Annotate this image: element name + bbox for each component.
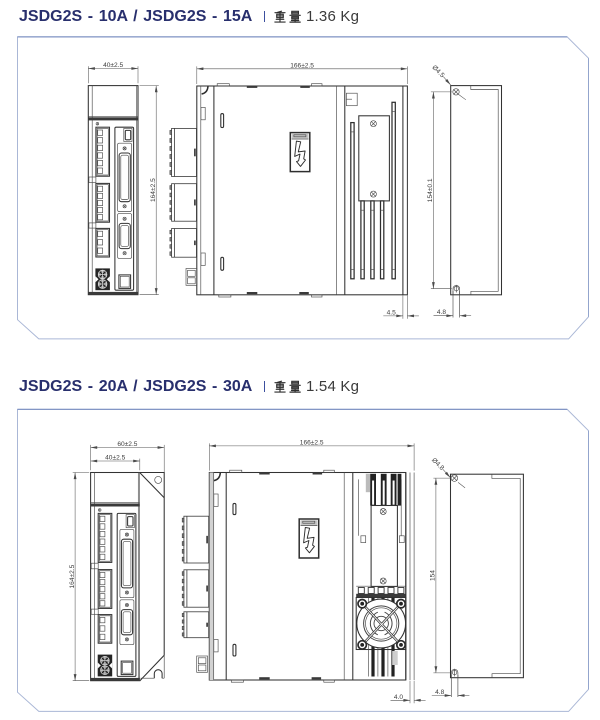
svg-text:40±2.5: 40±2.5 xyxy=(105,455,125,462)
svg-text:164±2.5: 164±2.5 xyxy=(150,178,157,202)
svg-text:166±2.5: 166±2.5 xyxy=(290,63,314,70)
svg-text:154±0.1: 154±0.1 xyxy=(427,178,434,202)
svg-text:4.5: 4.5 xyxy=(387,309,396,316)
svg-text:40±2.5: 40±2.5 xyxy=(103,62,123,69)
svg-text:4.0: 4.0 xyxy=(394,694,403,701)
svg-text:60±2.5: 60±2.5 xyxy=(117,441,137,448)
svg-text:4.8: 4.8 xyxy=(437,309,446,316)
svg-text:164±2.5: 164±2.5 xyxy=(69,564,76,588)
svg-text:154: 154 xyxy=(430,570,437,581)
svg-text:166±2.5: 166±2.5 xyxy=(300,440,324,447)
svg-text:4.8: 4.8 xyxy=(435,689,444,696)
